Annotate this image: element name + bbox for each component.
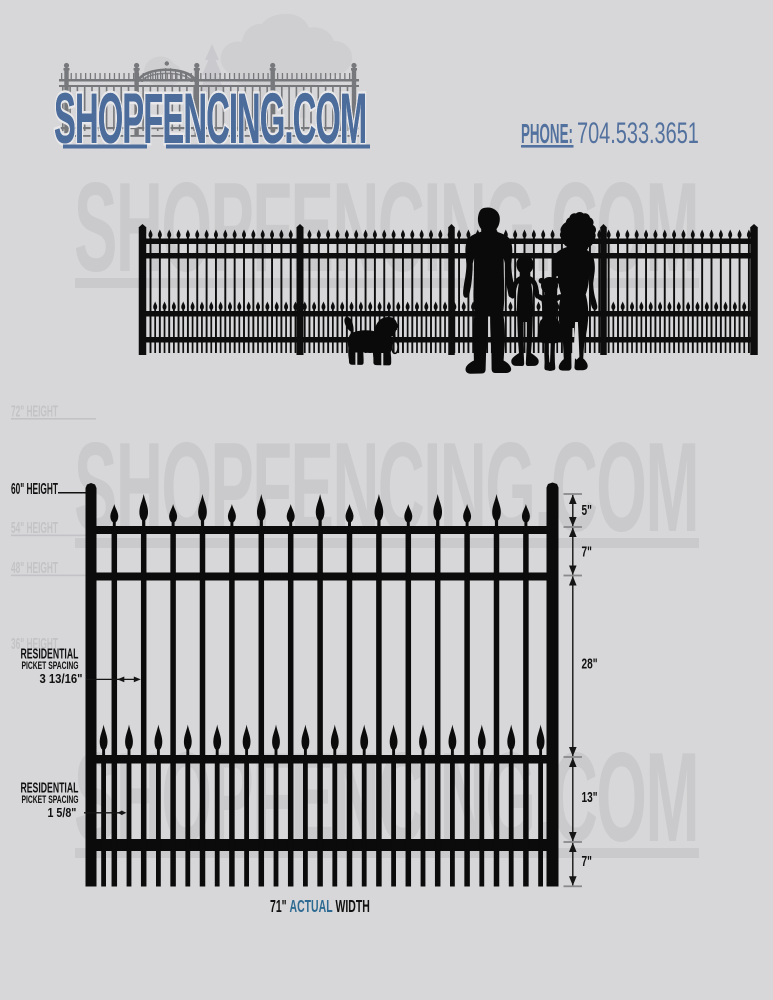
svg-text:48" HEIGHT: 48" HEIGHT <box>11 559 58 576</box>
svg-text:71" ACTUAL WIDTH: 71" ACTUAL WIDTH <box>270 897 370 916</box>
svg-text:5": 5" <box>582 502 592 518</box>
svg-text:PICKET SPACING: PICKET SPACING <box>22 793 79 805</box>
svg-text:PICKET SPACING: PICKET SPACING <box>22 659 79 671</box>
svg-text:7": 7" <box>582 544 592 560</box>
svg-text:54" HEIGHT: 54" HEIGHT <box>11 519 58 536</box>
svg-text:SHOPFENCING.COM: SHOPFENCING.COM <box>74 418 698 559</box>
svg-text:PHONE:: PHONE: <box>521 117 573 149</box>
svg-text:28": 28" <box>582 656 598 672</box>
svg-text:3 13/16": 3 13/16" <box>40 671 83 686</box>
svg-text:13": 13" <box>582 789 598 805</box>
svg-text:60" HEIGHT: 60" HEIGHT <box>11 480 58 497</box>
svg-text:7": 7" <box>582 853 592 869</box>
svg-text:1 5/8": 1 5/8" <box>48 805 77 820</box>
svg-text:704.533.3651: 704.533.3651 <box>577 117 699 150</box>
svg-text:72" HEIGHT: 72" HEIGHT <box>11 403 58 420</box>
